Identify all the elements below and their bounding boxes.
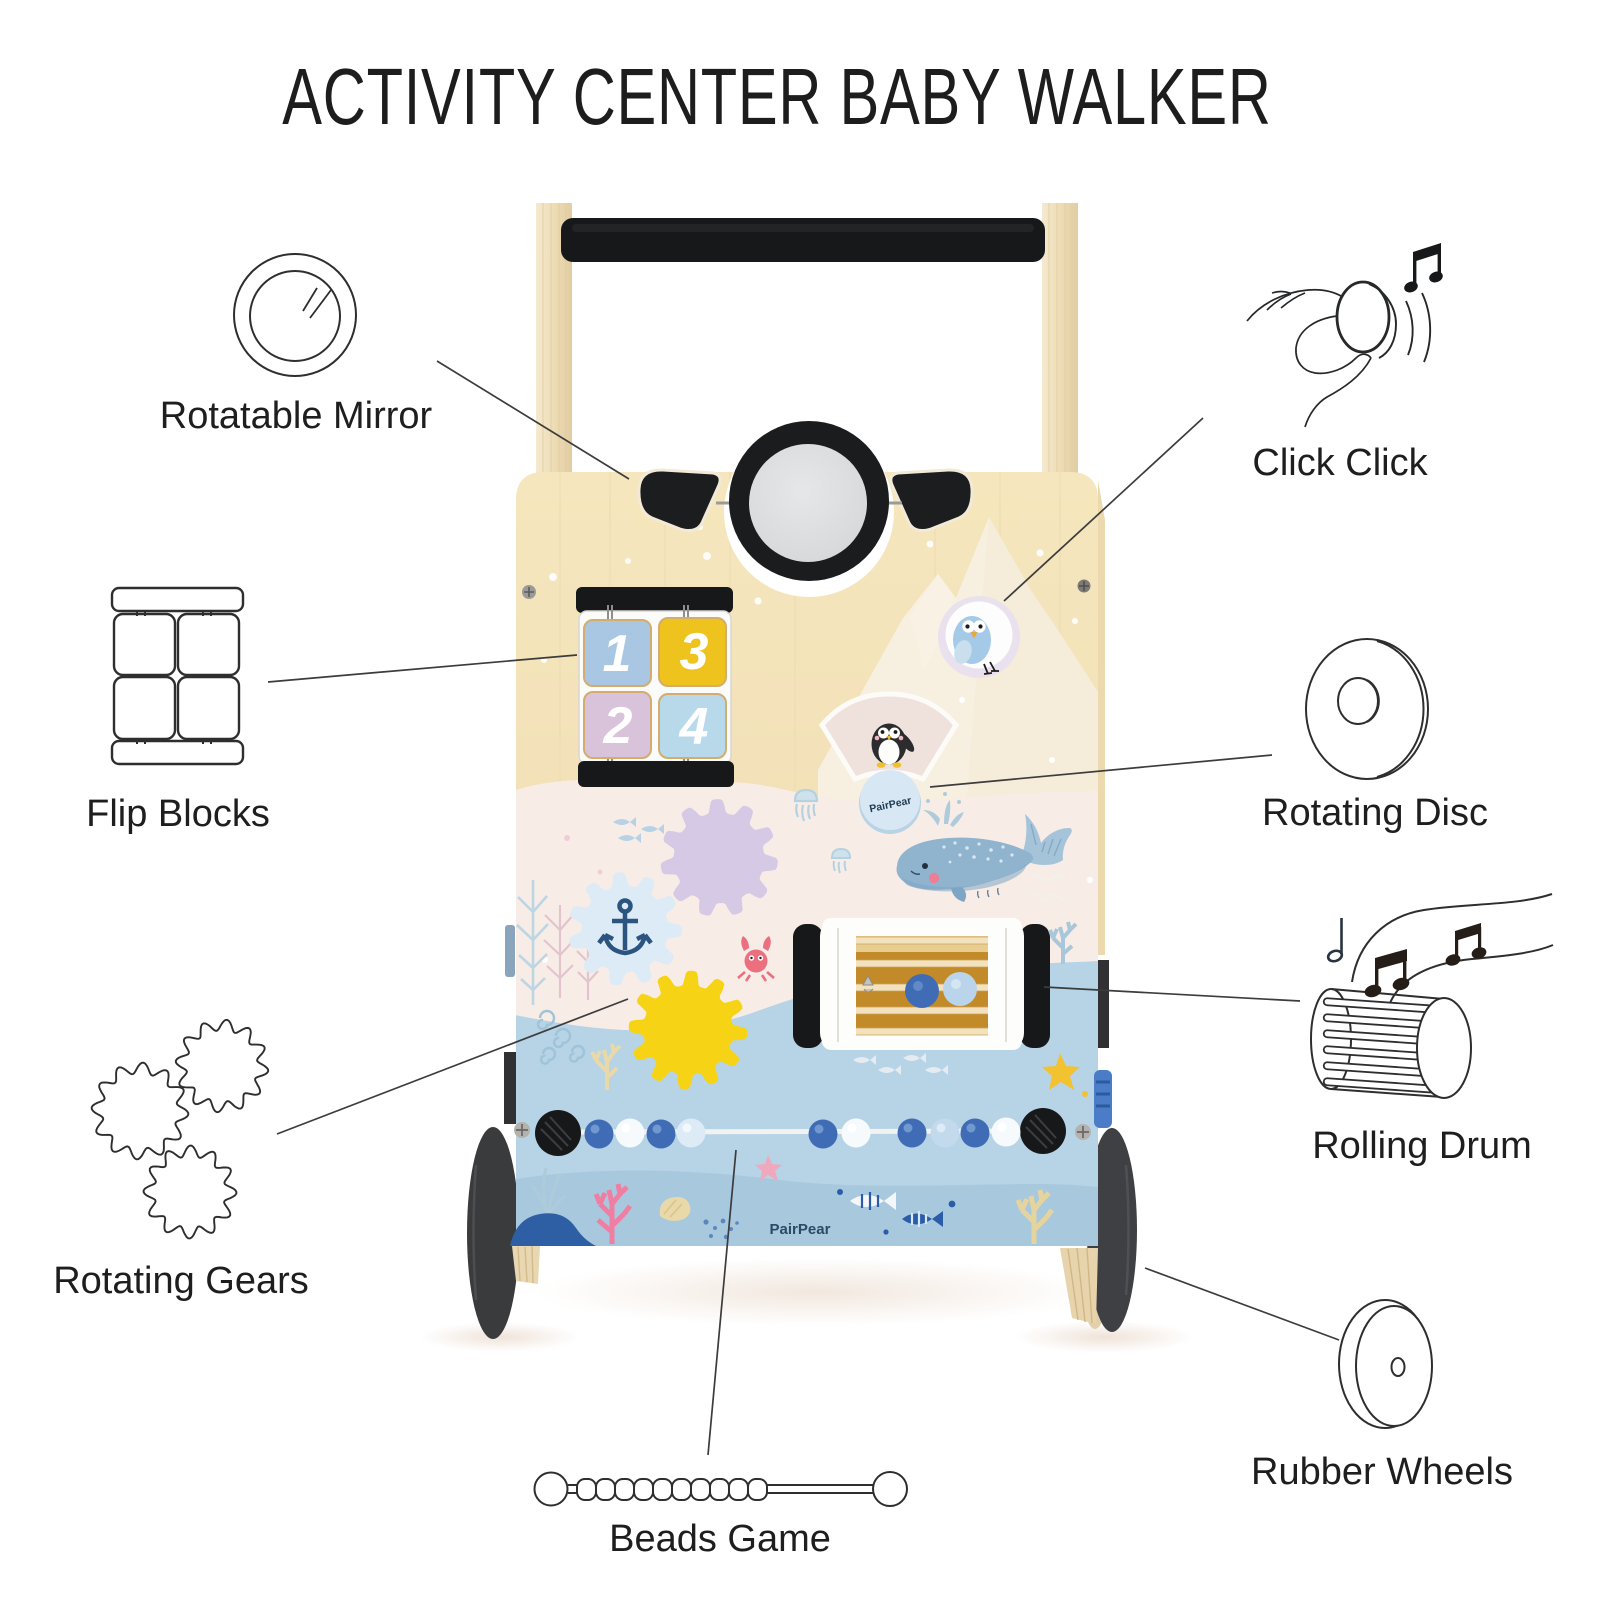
svg-text:2: 2 (603, 697, 633, 755)
svg-text:PairPear: PairPear (770, 1221, 831, 1238)
svg-text:3: 3 (680, 623, 709, 681)
svg-text:1: 1 (603, 625, 632, 683)
svg-text:4: 4 (679, 698, 709, 756)
